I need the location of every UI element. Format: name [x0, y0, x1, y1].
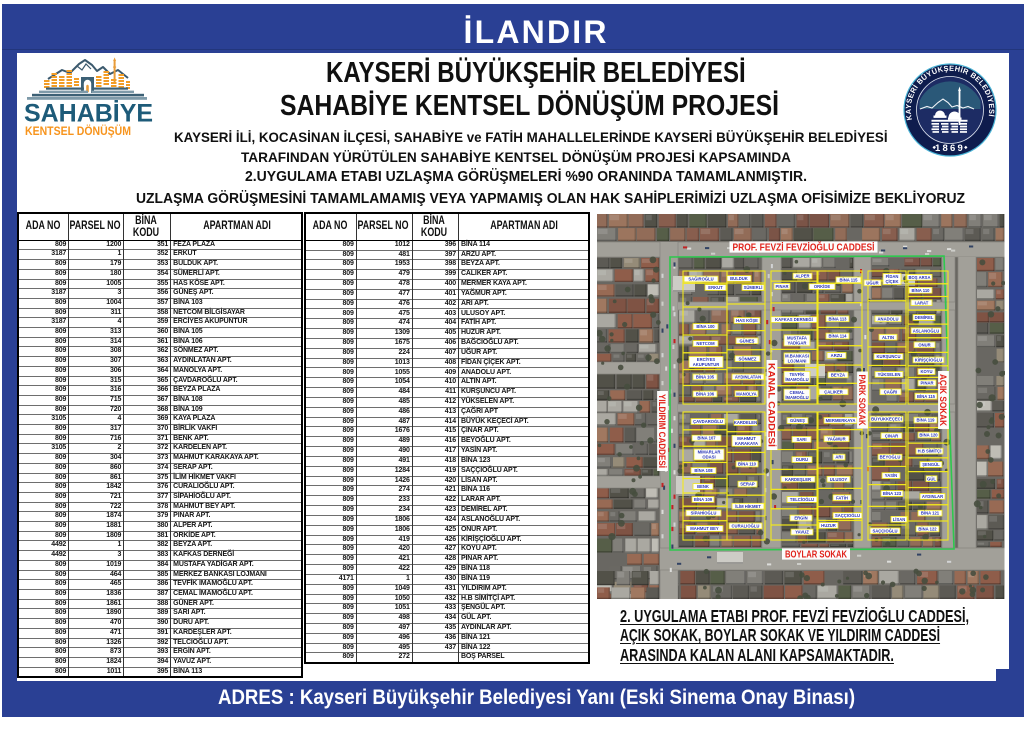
svg-text:BİNA 122: BİNA 122 [918, 527, 937, 532]
svg-text:BÜYÜKKEÇECİ: BÜYÜKKEÇECİ [871, 417, 902, 422]
svg-text:ORKİDE: ORKİDE [814, 284, 830, 289]
svg-text:BEYOĞLU: BEYOĞLU [880, 455, 901, 460]
svg-text:BİNA 107: BİNA 107 [697, 436, 716, 441]
svg-text:LOJMANI: LOJMANI [788, 359, 807, 364]
svg-text:ÇALIKER: ÇALIKER [824, 389, 843, 394]
svg-text:BİNA 120: BİNA 120 [919, 433, 938, 438]
svg-text:YAĞMUR: YAĞMUR [827, 436, 845, 441]
svg-text:1869: 1869 [935, 143, 965, 154]
svg-text:CURALIOĞLU: CURALIOĞLU [732, 524, 760, 529]
svg-text:MAHMUT BEY: MAHMUT BEY [690, 526, 719, 531]
svg-text:HUZUR: HUZUR [821, 523, 836, 528]
svg-text:LİSAN: LİSAN [893, 517, 906, 522]
svg-text:PINAR: PINAR [775, 284, 788, 289]
svg-text:HAS KÖŞE: HAS KÖŞE [736, 318, 758, 323]
svg-text:BİNA 100: BİNA 100 [696, 324, 715, 329]
svg-text:H.B SİMİTÇİ: H.B SİMİTÇİ [918, 449, 942, 454]
svg-text:AYDINLAR: AYDINLAR [922, 494, 943, 499]
svg-text:SAÇÇIOĞLU: SAÇÇIOĞLU [872, 528, 897, 533]
svg-text:YADİGAR: YADİGAR [788, 341, 807, 346]
svg-text:BULDUK: BULDUK [730, 276, 748, 281]
svg-text:I.ARAT: I.ARAT [915, 300, 929, 305]
svg-text:AÇIK SOKAK: AÇIK SOKAK [937, 374, 948, 426]
svg-text:KURŞUNCU: KURŞUNCU [877, 354, 901, 359]
svg-text:BİNA 106: BİNA 106 [696, 392, 715, 397]
svg-text:NETCOM: NETCOM [696, 341, 715, 346]
svg-text:BEYZA: BEYZA [831, 373, 845, 378]
svg-text:ODASI: ODASI [702, 455, 715, 460]
svg-text:PARK SOKAK: PARK SOKAK [856, 375, 867, 426]
svg-text:ONUR: ONUR [918, 342, 930, 347]
svg-text:İMAMOĞLU: İMAMOĞLU [785, 377, 808, 382]
svg-text:SERAP: SERAP [740, 482, 755, 487]
svg-text:BİNA 119: BİNA 119 [917, 418, 936, 423]
svg-text:ANADOLU: ANADOLU [878, 316, 899, 321]
svg-text:SAÇÇIOĞLU: SAÇÇIOĞLU [835, 513, 860, 518]
svg-text:FATİH: FATİH [836, 495, 848, 500]
svg-text:BİNA 115: BİNA 115 [840, 278, 859, 283]
svg-text:AYDINLATAN: AYDINLATAN [735, 375, 761, 380]
svg-text:BİNA 113: BİNA 113 [829, 316, 848, 321]
svg-text:YILDIRIM CADDESİ: YILDIRIM CADDESİ [656, 394, 667, 468]
svg-text:İMAMOĞLU: İMAMOĞLU [785, 395, 808, 400]
svg-text:SAĞIROĞLU: SAĞIROĞLU [688, 277, 713, 282]
svg-text:İLİM HİKMET: İLİM HİKMET [735, 504, 761, 509]
svg-text:BENK: BENK [697, 484, 709, 489]
svg-text:ALTIN: ALTIN [882, 335, 894, 340]
svg-text:ASLANOĞLU: ASLANOĞLU [913, 328, 940, 333]
svg-text:SÖNMEZ: SÖNMEZ [739, 356, 757, 361]
svg-text:GÜNEŞ: GÜNEŞ [790, 418, 805, 423]
svg-text:AKUPUNTUR: AKUPUNTUR [693, 362, 720, 367]
svg-text:KARDELEN: KARDELEN [734, 420, 757, 425]
svg-text:YÜKSELEN: YÜKSELEN [878, 372, 901, 377]
svg-text:ULUSOY: ULUSOY [830, 477, 848, 482]
svg-text:KOYU: KOYU [920, 369, 932, 374]
svg-text:BİNA 108: BİNA 108 [694, 468, 713, 473]
svg-text:ÇAVDAROĞLU: ÇAVDAROĞLU [693, 419, 723, 424]
svg-text:PROF. FEVZİ FEVZİOĞLU CADDESİ: PROF. FEVZİ FEVZİOĞLU CADDESİ [733, 241, 875, 254]
svg-text:KENTSEL DÖNÜŞÜM: KENTSEL DÖNÜŞÜM [25, 123, 131, 138]
svg-text:YASİN: YASİN [885, 473, 897, 478]
svg-text:ERGİN: ERGİN [794, 516, 807, 521]
svg-text:SİPAHİOĞLU: SİPAHİOĞLU [691, 511, 717, 516]
svg-text:ARI: ARI [835, 455, 842, 460]
svg-text:BİNA 114: BİNA 114 [829, 334, 848, 339]
svg-text:DURU: DURU [796, 457, 808, 462]
svg-text:ÇİÇEK: ÇİÇEK [885, 279, 898, 284]
svg-text:GÜNEŞ: GÜNEŞ [740, 338, 755, 343]
svg-text:BİNA 115: BİNA 115 [917, 394, 936, 399]
svg-text:BOYLAR SOKAK: BOYLAR SOKAK [785, 550, 848, 561]
svg-text:BOŞ ARSA: BOŞ ARSA [909, 275, 931, 280]
svg-text:TELCİOĞLU: TELCİOĞLU [790, 497, 814, 502]
svg-text:YAVUZ: YAVUZ [795, 530, 809, 535]
svg-text:BİNA 110: BİNA 110 [738, 462, 757, 467]
svg-text:ARZU: ARZU [831, 353, 843, 358]
svg-text:BİNA 110: BİNA 110 [912, 288, 931, 293]
svg-text:ŞENGÜL: ŞENGÜL [922, 462, 940, 467]
svg-text:KİRİŞÇİOĞLU: KİRİŞÇİOĞLU [915, 358, 942, 363]
svg-text:DEMİREL: DEMİREL [915, 315, 934, 320]
svg-text:KANAL CADDESİ: KANAL CADDESİ [766, 363, 777, 447]
svg-text:BİNA 105: BİNA 105 [696, 375, 715, 380]
svg-text:BİNA 121: BİNA 121 [921, 511, 940, 516]
svg-text:ÇINAR: ÇINAR [885, 433, 898, 438]
svg-text:SÜMERLİ: SÜMERLİ [744, 285, 763, 290]
svg-text:UĞUR: UĞUR [866, 280, 878, 285]
svg-text:PINAR: PINAR [920, 381, 933, 386]
svg-text:MANOLYA: MANOLYA [736, 391, 756, 396]
svg-text:BİNA 123: BİNA 123 [883, 491, 902, 496]
svg-text:ERKUT: ERKUT [708, 285, 723, 290]
svg-text:ÇAĞRI: ÇAĞRI [884, 389, 898, 394]
svg-text:KARAKAYA: KARAKAYA [735, 441, 758, 446]
svg-text:GÜL: GÜL [927, 476, 936, 481]
svg-text:ALPER: ALPER [795, 274, 809, 279]
svg-text:KAFKAS DERNEĞİ: KAFKAS DERNEĞİ [775, 317, 813, 322]
svg-text:BİNA 109: BİNA 109 [694, 497, 713, 502]
svg-text:SARI: SARI [796, 437, 806, 442]
svg-text:KARDEŞLER: KARDEŞLER [785, 477, 811, 482]
svg-text:MERMERKAYA: MERMERKAYA [826, 418, 856, 423]
